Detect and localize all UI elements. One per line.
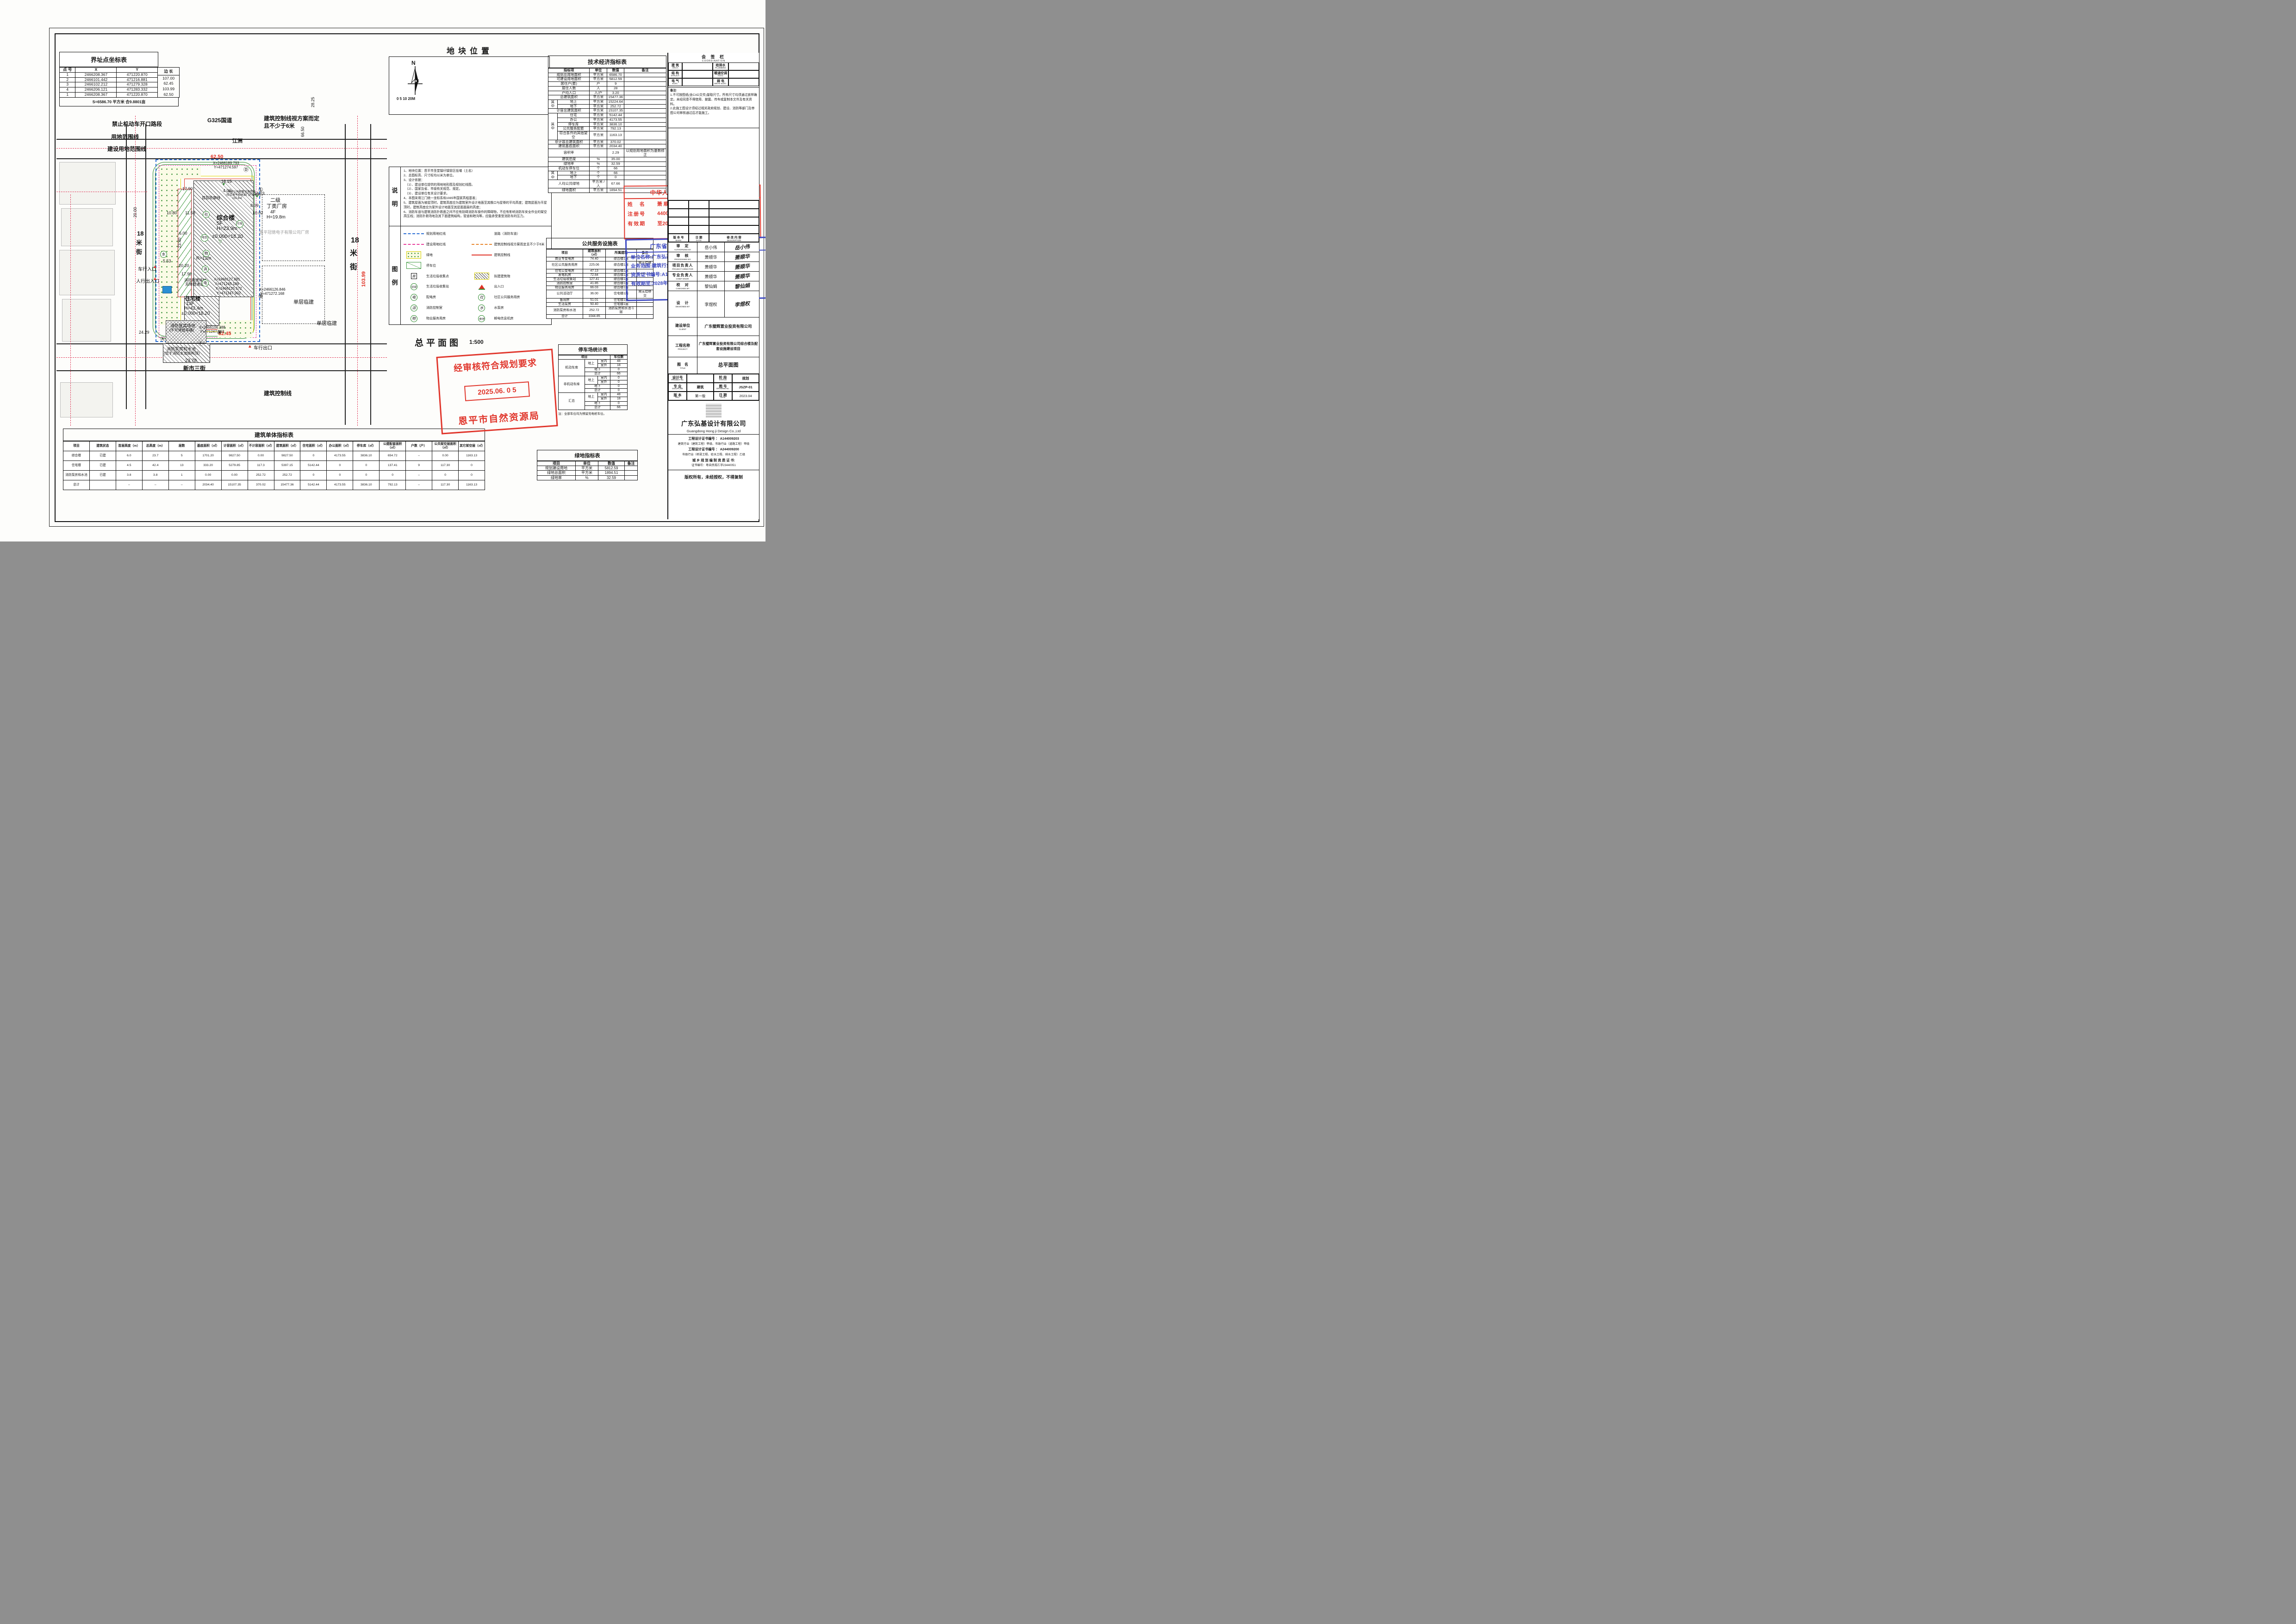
table-cell: 5142.44: [300, 461, 327, 471]
table-cell: 18: [610, 364, 627, 368]
table-cell: 计容面积（㎡）: [221, 442, 248, 451]
table-cell: 9: [406, 461, 432, 471]
table-cell: 地上: [585, 376, 597, 385]
table-cell: 41.85: [583, 282, 606, 286]
coordination-title: 会 签 栏: [668, 54, 759, 60]
legend-construction-redline-icon: [404, 244, 424, 245]
table-cell: 3: [60, 82, 75, 87]
table-cell: [89, 480, 116, 490]
legend-tab: 图例: [389, 226, 401, 324]
table-cell: 其它架空层（㎡）: [459, 442, 485, 451]
plan-label: X=2466126.846: [259, 288, 286, 292]
plan-label: Y=471274.597: [214, 166, 238, 169]
drawing-title-label-en: TITLE: [680, 367, 685, 369]
table-cell: 已建: [89, 461, 116, 471]
table-cell: 地上: [585, 360, 597, 368]
cert-line: 城 乡 规 划 编 制 资 质 证 书:: [669, 458, 758, 464]
table-cell: 6.0: [116, 451, 142, 461]
cert-line: 市政行业（桥梁工程、给水工程、排水工程）乙级: [669, 453, 758, 458]
table-cell: 其中: [548, 113, 558, 140]
person-name: 萧顺华: [697, 252, 725, 261]
table-cell: 数值: [607, 68, 624, 73]
table-cell: –: [406, 471, 432, 480]
plan-label: 街: [350, 264, 357, 271]
revision-cell: [709, 209, 759, 217]
plan-label: 建筑控制线视方案而定: [264, 116, 319, 121]
plan-label: 消: [202, 266, 209, 273]
discipline-label-en: WEAK ELEC.: [714, 83, 727, 85]
plan-label: Y=471245.189: [215, 282, 239, 286]
table-cell: 发电机房: [547, 274, 583, 278]
table-cell: 住宅楼: [63, 461, 90, 471]
plan-label: 二级: [270, 198, 280, 203]
table-cell: 0: [610, 389, 627, 393]
plan-label: 17.90: [181, 272, 192, 276]
drawing-sheet: G325国道江洲禁止机动车开口路段用地范围线建设用地范围线建筑控制线视方案而定且…: [0, 0, 765, 541]
drawing-title-label: 图 名: [677, 362, 688, 367]
review-approval-stamp: 经审核符合规划要求 2025.06. 0 5 恩平市自然资源局: [436, 348, 558, 434]
table-cell: [624, 162, 666, 167]
table-cell: 室外: [597, 364, 610, 368]
plan-label: ▲: [248, 344, 252, 349]
table-cell: 平方米: [590, 118, 607, 122]
location-panel: N 0 5 10 20M 地块位置: [389, 56, 550, 115]
notes-panel: 说明 1、地块位置：恩平市圣堂镇圩镇管区低埔（土名）2、总图标高、尺寸标均以米为…: [389, 167, 552, 227]
legend-label: 拟建建筑物: [494, 274, 510, 279]
plan-label: ⑧: [258, 293, 263, 299]
green-panel: 绿地指标表 项目 单位 数值 备注 规划建设用地平方米5812.59绿地总面积平…: [537, 450, 638, 480]
client-section: 建设单位CLIENT 广东璧辉置业投资有限公司: [668, 317, 759, 336]
col-header: 项目: [547, 249, 583, 257]
plan-label: 消防登高场地: [170, 324, 195, 328]
area-note: S=6586.70 平方米 合9.8801亩: [59, 98, 179, 106]
table-cell: 333.20: [195, 461, 221, 471]
plan-label: 18.15: [221, 180, 232, 184]
table-cell: –: [168, 480, 195, 490]
table-cell: [624, 73, 666, 77]
table-cell: 地上: [557, 100, 590, 105]
revision-cell: [689, 225, 709, 234]
role-label: 项目负责人: [672, 263, 693, 268]
table-cell: 48: [610, 393, 627, 397]
discipline-label-en: STRUCT.: [671, 75, 680, 77]
plan-label: 20.00: [133, 207, 137, 218]
client-label: 建设单位: [675, 323, 690, 328]
plan-label: Ⓐ: [160, 337, 165, 342]
legend-label: 出入口: [494, 284, 504, 289]
plan-label: 电信: [201, 234, 208, 242]
plan-label: 4F: [270, 210, 276, 215]
table-cell: [590, 149, 607, 157]
project-label-en: PROJECT: [678, 348, 687, 350]
discipline-label-en: ARCH.: [672, 67, 678, 69]
table-cell: [625, 466, 638, 471]
building-index-panel: 建筑单体指标表 项目建筑状态首层高度（m）总高度（m）层数基底面积（㎡）计容面积…: [63, 429, 485, 490]
table-cell: [624, 157, 666, 162]
meta-label-en: REV.: [675, 397, 679, 398]
parking-panel: 停车场统计表 项目车位数 机动车库地上室内48室外18地下0总计66非机动车库地…: [558, 344, 628, 416]
table-cell: 平方米: [590, 100, 607, 105]
plan-label: 街: [136, 249, 142, 255]
table-cell: 0: [327, 461, 353, 471]
table-cell: 消防泵房和水池-1层: [606, 306, 637, 314]
person-name: 黎仙娟: [697, 281, 725, 291]
revision-cell: [668, 200, 689, 209]
table-cell: 计容总建筑面积: [548, 109, 590, 113]
col-header: 数值: [598, 461, 625, 466]
table-cell: 居住人数: [548, 86, 590, 91]
table-cell: 42.4: [142, 461, 168, 471]
table-cell: 已建: [89, 451, 116, 461]
table-cell: 0: [380, 471, 406, 480]
plan-label: H=19.8m: [267, 215, 286, 220]
stamp-field-label: 注册号: [628, 210, 657, 218]
cert-line: 工程设计证书编号 ： A244009200: [669, 447, 758, 453]
table-cell: 其中: [548, 100, 558, 109]
plan-label: X=2466189.793: [213, 162, 239, 165]
legend-label: 消防控制室: [426, 305, 442, 310]
plan-label: 18: [137, 230, 143, 236]
table-cell: 471220.870: [117, 72, 158, 77]
table-cell: 备注: [624, 68, 666, 73]
plan-label: 24.29: [139, 330, 149, 335]
table-cell: [624, 77, 666, 82]
table-cell: 总建筑面积: [548, 95, 590, 100]
plan-label: ±0.000=18.20: [181, 311, 210, 316]
table-cell: 252.72: [248, 471, 274, 480]
plan-label: 垃圾: [236, 220, 243, 228]
note-line: 5、建筑屋面为坡屋顶时，建筑高度应为建筑室外设计地面至其檐口与屋脊的平均高度；建…: [404, 201, 548, 210]
table-cell: 2466208.367: [75, 92, 117, 97]
plan-label: 综合楼: [217, 215, 235, 221]
plan-label: G325国道: [207, 118, 232, 123]
table-cell: [637, 302, 653, 306]
tech-indicators-table: 指标项单位数值备注 规划总用地面积平方米6586.70可建设用地面积平方米581…: [548, 68, 666, 193]
table-cell: 137.41: [380, 461, 406, 471]
table-cell: 生活泵房: [547, 302, 583, 306]
revision-cell: [709, 225, 759, 234]
table-cell: 建筑基底面积: [548, 144, 590, 149]
table-cell: [624, 104, 666, 109]
table-cell: 绿地总面积: [537, 471, 576, 475]
table-cell: 1044.85: [583, 314, 606, 318]
table-cell: 5397.15: [274, 461, 300, 471]
table-cell: –: [406, 451, 432, 461]
revision-cell: [689, 200, 709, 209]
signature-cell: [682, 78, 713, 86]
table-cell: 66.03: [583, 286, 606, 290]
table-cell: [624, 118, 666, 122]
scalebar-ticks: 0 5 10 20M: [397, 97, 415, 101]
table-cell: 51.01: [583, 298, 606, 302]
tech-indicator-panel: 技术经济指标表 指标项单位数值备注 规划总用地面积平方米6586.70可建设用地…: [548, 56, 666, 193]
plan-label: (低于消防水池结构顶): [164, 352, 199, 355]
plan-label: ▲: [153, 265, 157, 269]
legend-parking-icon: [406, 262, 421, 269]
table-cell: 66: [610, 405, 627, 410]
discipline-label-en: ELEC.: [672, 83, 678, 85]
table-cell: 已建: [89, 471, 116, 480]
table-cell: 1: [60, 72, 75, 77]
table-cell: 18: [610, 397, 627, 401]
table-cell: 2: [60, 77, 75, 82]
table-cell: 社区公共服务用房: [547, 261, 583, 269]
table-cell: [625, 471, 638, 475]
table-cell: 5279.85: [221, 461, 248, 471]
table-cell: 室外: [597, 397, 610, 401]
cert-line: 工程设计证书编号 ： A144009203: [669, 436, 758, 442]
table-cell: 户: [590, 82, 607, 87]
company-name-cn: 广东弘基设计有限公司: [668, 418, 759, 428]
role-label-en: CHECKED BY: [676, 287, 689, 290]
plan-label: 社: [203, 211, 210, 218]
table-cell: 72.84: [583, 274, 606, 278]
table-cell: 9827.50: [274, 451, 300, 461]
legend-trash-station-icon: 垃圾: [411, 283, 417, 290]
role-label-en: CHIEF ENGR.: [676, 278, 689, 280]
plan-label: Y=471247.902: [217, 292, 241, 295]
table-cell: 471220.870: [117, 92, 158, 97]
table-cell: 0: [353, 461, 380, 471]
table-cell: 370.02: [248, 480, 274, 490]
table-cell: 室内: [597, 360, 610, 364]
table-cell: 4173.55: [327, 480, 353, 490]
table-cell: 公建配套面积（㎡）: [380, 442, 406, 451]
table-cell: 0.00: [221, 471, 248, 480]
table-cell: 消防泵房和水池: [63, 471, 90, 480]
parking-table-title: 停车场统计表: [558, 344, 628, 355]
project-name: 广东璧辉置业投资有限公司综合楼及配套设施建设项目: [697, 336, 759, 357]
table-cell: 1163.13: [459, 480, 485, 490]
legend-label: 道路（消防车道）: [494, 231, 520, 236]
legend-power-room-icon: 电: [411, 294, 417, 301]
table-cell: 符合条件的其他架空: [557, 131, 590, 140]
table-cell: 225.06: [583, 261, 606, 269]
legend-entrance-icon: [479, 285, 485, 289]
table-cell: 0: [459, 461, 485, 471]
table-cell: 9827.50: [221, 451, 248, 461]
plan-label: 米: [350, 250, 357, 257]
table-cell: [624, 175, 666, 180]
table-cell: 机动车停车位: [548, 166, 590, 171]
table-cell: 0: [327, 471, 353, 480]
signature-cell: [682, 70, 713, 78]
revision-cell: [668, 217, 689, 225]
table-cell: 654.72: [380, 451, 406, 461]
plan-label: 8.09: [250, 204, 259, 208]
table-cell: 74.40: [583, 257, 606, 261]
rev-col-label-en: MARK: [675, 239, 681, 242]
north-arrow-icon: [405, 65, 425, 96]
table-cell: 0.00: [195, 471, 221, 480]
table-cell: 平方米 /人: [590, 180, 607, 188]
note-line: 4、本图采用江门统一坐标系和1985年国家高程基准；: [404, 196, 548, 201]
signature-cell: [682, 62, 713, 70]
drawing-title-section: 图 名TITLE 总平面图: [668, 357, 759, 374]
table-cell: 28: [607, 86, 624, 91]
plan-label: 恩平冠徳电子有限公司厂房: [259, 230, 309, 235]
plan-label: 18: [351, 237, 359, 244]
legend-community-room-icon: 社: [478, 294, 485, 301]
building-table-title: 建筑单体指标表: [63, 429, 485, 441]
plan-label: ⑨: [217, 330, 222, 335]
table-cell: 户数（户）: [406, 442, 432, 451]
legend-pump-room-icon: 水: [478, 305, 485, 311]
edge-length: 62.45: [158, 81, 179, 86]
green-indicators-table: 项目 单位 数值 备注 规划建设用地平方米5812.59绿地总面积平方米1894…: [537, 461, 638, 480]
role-label: 校 对: [677, 282, 689, 287]
rev-col-label: 日 期: [696, 235, 703, 239]
table-cell: 平方米: [590, 188, 607, 193]
table-cell: [624, 144, 666, 149]
table-cell: 住宅面积（㎡）: [300, 442, 327, 451]
table-cell: 252.72: [583, 306, 606, 314]
legend-property-room-icon: 物: [411, 315, 417, 322]
table-cell: 2034.40: [607, 144, 624, 149]
table-cell: 2466101.442: [75, 77, 117, 82]
cert-line: 证书编号：粤自资规乙字23440051: [669, 463, 758, 468]
rev-col-label: 版 本 号: [673, 235, 684, 239]
meta-label-en: PROJECT No.: [671, 379, 684, 381]
col-header: Y: [117, 68, 158, 73]
revision-cell: [668, 225, 689, 234]
plan-label: 电: [202, 280, 209, 286]
legend-panel: 图例 规划用地红线 道路（消防车道） 建设用地红线 建筑控制线视方案而定且不少于…: [389, 226, 552, 325]
role-label-en: AUTHORIZED BY: [674, 249, 691, 251]
plan-label: 物: [203, 250, 210, 257]
table-cell: 平方米: [590, 113, 607, 118]
table-cell: [624, 91, 666, 95]
table-cell: 地下: [557, 175, 590, 180]
col-header: X: [75, 68, 117, 73]
notes-content: 1、地块位置：恩平市圣堂镇圩镇管区低埔（土名）2、总图标高、尺寸标均以米为单位。…: [401, 167, 551, 226]
note-line: （3）、建设单位有关设计要求。: [404, 192, 548, 196]
table-cell: 1894.51: [607, 188, 624, 193]
legend-label: 配电房: [426, 295, 436, 299]
table-cell: 个: [590, 166, 607, 171]
plan-label: 155.6㎡: [232, 197, 242, 200]
table-cell: %: [576, 475, 598, 480]
plan-label: 消防泵房和水池: [167, 347, 196, 351]
plan-label: 17.90: [182, 187, 193, 191]
table-cell: 指标项: [548, 68, 590, 73]
plan-label: 丁类厂房: [267, 204, 287, 209]
table-cell: 非机动车库: [559, 376, 585, 393]
table-cell: 0: [432, 471, 459, 480]
revision-cell: [668, 209, 689, 217]
signature: 岳小伟: [734, 243, 750, 251]
table-cell: 1: [168, 471, 195, 480]
legend-road-icon: [472, 230, 492, 237]
person-name: 李煜权: [697, 291, 725, 317]
table-cell: 项目: [63, 442, 90, 451]
plan-label: ▲: [153, 277, 157, 281]
table-cell: [606, 314, 637, 318]
revision-cell: [709, 200, 759, 209]
table-cell: 消防控制室: [547, 282, 583, 286]
meta-label-en: DISCIPLINE: [672, 388, 683, 390]
master-plan-label: 总平面图: [415, 336, 461, 348]
table-cell: 总计: [585, 405, 610, 410]
table-cell: 1894.51: [598, 471, 625, 475]
table-cell: 9: [607, 82, 624, 87]
note-line: 2.此施工图设计须经过相关政府规划、建设、消防等部门及审图公司审核通过后才能施工…: [670, 106, 757, 116]
rev-col-label-en: DESCRIPTION: [727, 239, 741, 242]
plan-label: 建设用地范围线: [107, 146, 146, 152]
table-cell: 0: [610, 385, 627, 389]
table-cell: [624, 113, 666, 118]
table-cell: 机动车库: [559, 360, 585, 376]
table-cell: 36.00: [583, 290, 606, 298]
coordination-grid: 建 筑ARCH. 给排水PLUMBING 结 构STRUCT. 暖通空调HVAC…: [668, 62, 759, 86]
plan-label: 新市三街: [183, 366, 205, 371]
boundary-coordinate-table: 界址点坐标表 点 号 X Y 12466208.367471220.870224…: [59, 52, 180, 106]
table-cell: 0: [610, 380, 627, 385]
legend-items: 规划用地红线 道路（消防车道） 建设用地红线 建筑控制线视方案而定且不少于6米 …: [401, 226, 551, 324]
rev-col-label: 修 改 内 容: [727, 235, 741, 239]
table-cell: 32.59: [598, 475, 625, 480]
table-cell: 5142.44: [300, 480, 327, 490]
legend-label: 停车位: [426, 263, 436, 268]
plan-label: 米: [136, 240, 142, 246]
signature-cell: [728, 62, 759, 70]
drawing-meta-grid: 设计号PROJECT No. 阶 段STATUS 规划 专 业DISCIPLIN…: [668, 374, 759, 401]
table-cell: 总高度（m）: [142, 442, 168, 451]
role-label-en: PROJECT DIRECTOR: [672, 268, 693, 270]
table-cell: 0: [300, 471, 327, 480]
plan-label: ±0.000=18.20: [212, 234, 243, 239]
col-header: 项目: [537, 461, 576, 466]
legend-label: 生活垃圾收集站: [426, 284, 449, 289]
table-cell: 1: [60, 92, 75, 97]
plan-label: 23.78: [185, 359, 197, 363]
table-cell: –: [142, 480, 168, 490]
table-cell: 792.13: [380, 480, 406, 490]
table-cell: 3836.10: [353, 480, 380, 490]
table-cell: 3.8: [116, 471, 142, 480]
col-header: 边 长: [158, 68, 179, 75]
table-cell: 项目: [559, 355, 610, 360]
table-cell: 平方米: [576, 471, 598, 475]
table-cell: 15224.64: [607, 100, 624, 105]
table-cell: 个: [590, 175, 607, 180]
table-cell: 综合楼: [63, 451, 90, 461]
signature: 黎仙娟: [734, 281, 750, 290]
table-cell: 地下: [585, 385, 610, 389]
master-plan-scale: 1:500: [469, 339, 484, 345]
table-cell: [624, 127, 666, 131]
meta-value: 规划: [732, 374, 759, 383]
col-header: 单位: [576, 461, 598, 466]
table-cell: 4: [60, 87, 75, 93]
table-cell: [624, 86, 666, 91]
parking-note: 注：全部车位均为预留充电桩车位。: [558, 411, 628, 416]
table-cell: 2466206.121: [75, 87, 117, 93]
signature-section: 审 定AUTHORIZED BY岳小伟岳小伟 审 核PROCESSED BY萧顺…: [668, 243, 759, 317]
plan-label: 5.53: [163, 259, 171, 263]
green-table-title: 绿地指标表: [537, 450, 638, 461]
meta-label-en: DRAWING No.: [716, 388, 729, 390]
table-cell: 平方米: [590, 131, 607, 140]
stamp-line: 经审核符合规划要求: [453, 356, 537, 374]
table-cell: 252.72: [274, 471, 300, 480]
note-line: 3、设计依据：: [404, 178, 548, 183]
table-cell: 66: [610, 372, 627, 376]
plan-label: H=42.4m: [184, 306, 203, 311]
remarks-title: 备注:: [670, 89, 677, 92]
table-cell: 32.59: [607, 162, 624, 167]
table-cell: 物业服务用房: [547, 286, 583, 290]
